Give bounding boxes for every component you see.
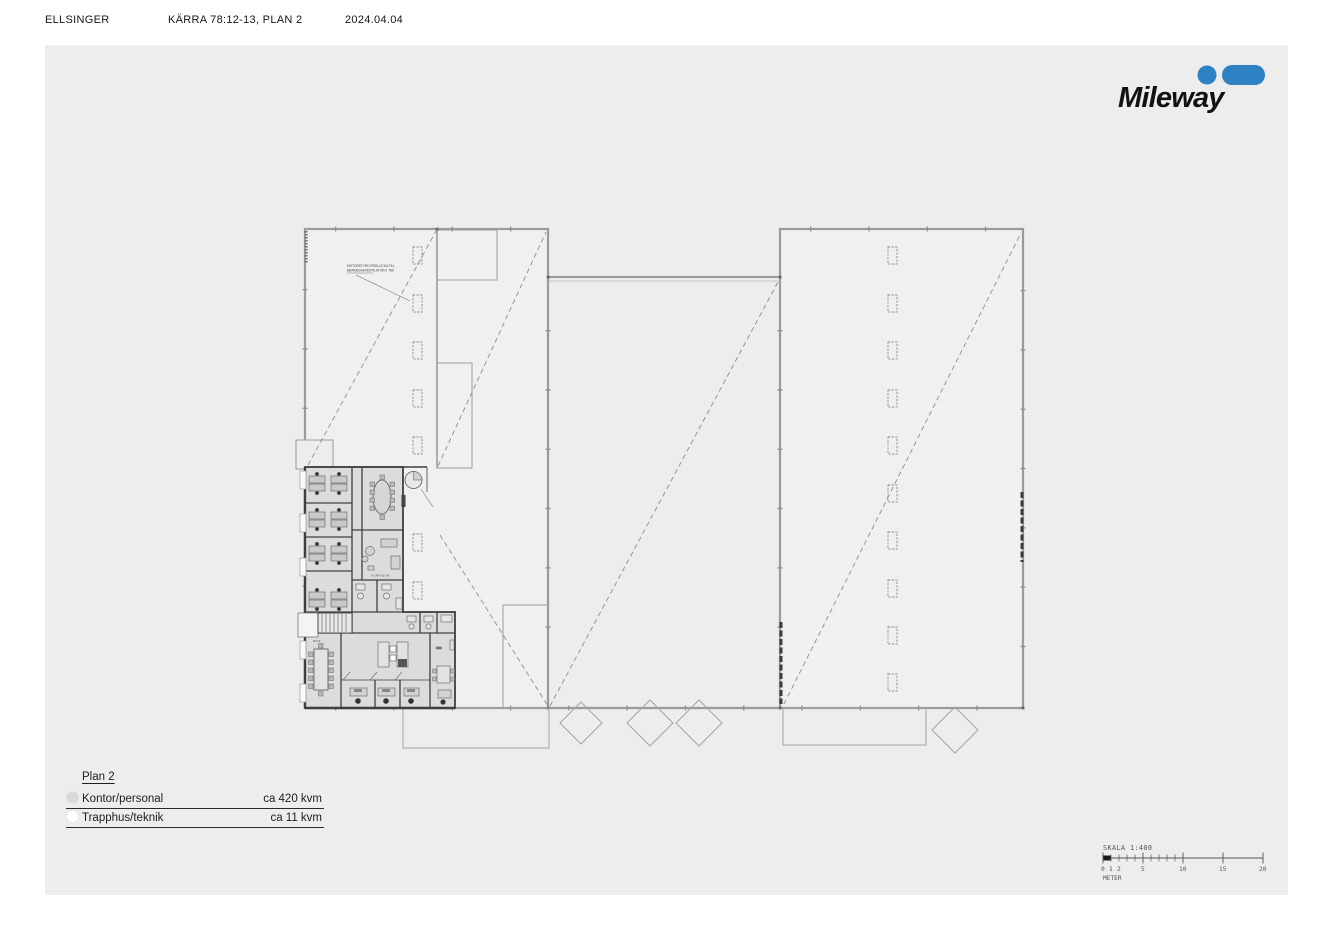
kontor-swatch-icon — [66, 791, 79, 804]
svg-text:20: 20 — [1259, 866, 1267, 873]
svg-text:15: 15 — [1219, 866, 1227, 873]
plan-sheet: ELLSINGER KÄRRA 78:12-13, PLAN 2 2024.04… — [0, 0, 1330, 940]
svg-text:FRD: FRD — [436, 646, 442, 650]
legend-label: Trapphus/teknik — [82, 812, 163, 824]
legend-plan-label: Plan 2 — [82, 771, 324, 783]
svg-text:MÖTE: MÖTE — [313, 639, 321, 643]
svg-text:1: 1 — [1109, 866, 1113, 873]
svg-text:2: 2 — [1117, 866, 1121, 873]
svg-text:10: 10 — [1179, 866, 1187, 873]
trapphus-swatch-icon — [66, 810, 79, 823]
svg-text:MOTORSTYRD RÖKLUCKA TILL: MOTORSTYRD RÖKLUCKA TILL — [347, 264, 395, 268]
scale-title: SKALA 1:400 — [1103, 844, 1152, 852]
svg-text:0: 0 — [1101, 866, 1105, 873]
legend-label: Kontor/personal — [82, 793, 163, 805]
legend-row-kontor: Kontor/personal ca 420 kvm — [66, 790, 324, 809]
legend-value: ca 11 kvm — [270, 812, 322, 824]
stairwell — [298, 613, 352, 637]
scale-tick-labels: 0 1 2 5 10 15 20 — [1101, 866, 1267, 873]
corridor-label: KORRIDOR — [371, 574, 390, 578]
svg-text:BRANDGASVENTILATION I TAK: BRANDGASVENTILATION I TAK — [347, 269, 395, 273]
svg-text:5: 5 — [1141, 866, 1145, 873]
scale-bar: SKALA 1:400 0 1 2 5 10 — [1101, 844, 1267, 882]
legend: Plan 2 Kontor/personal ca 420 kvm Trapph… — [66, 771, 324, 828]
legend-row-trapphus: Trapphus/teknik ca 11 kvm — [66, 809, 324, 828]
legend-value: ca 420 kvm — [263, 793, 322, 805]
loading-docks — [403, 700, 978, 753]
scale-unit: METER — [1103, 875, 1122, 882]
